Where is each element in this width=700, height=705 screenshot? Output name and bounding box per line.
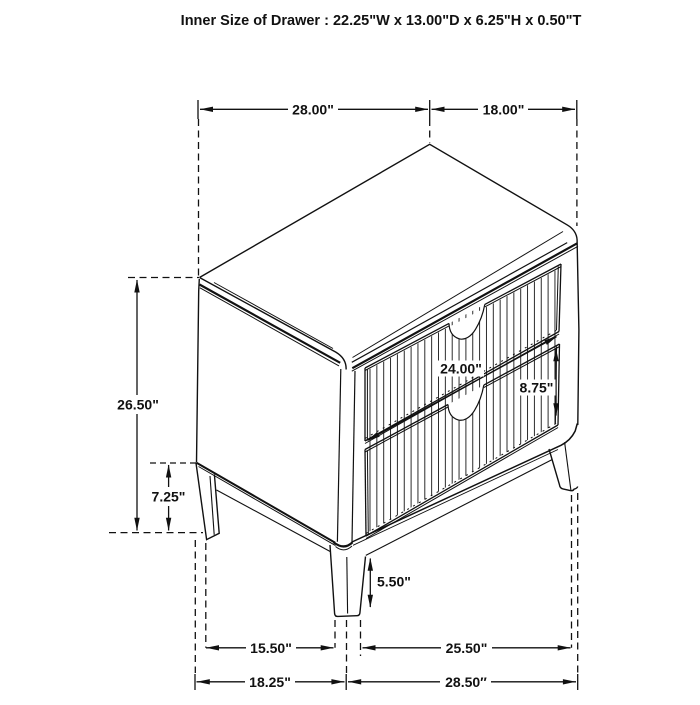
svg-text:Inner Size of Drawer : 22.25"W: Inner Size of Drawer : 22.25"W x 13.00"D… xyxy=(181,13,582,29)
svg-text:28.00": 28.00" xyxy=(292,101,334,117)
svg-text:26.50": 26.50" xyxy=(117,397,159,413)
svg-text:18.25": 18.25" xyxy=(249,674,291,690)
svg-text:18.00": 18.00" xyxy=(483,101,525,117)
svg-text:8.75": 8.75" xyxy=(520,380,554,396)
svg-text:28.50″: 28.50″ xyxy=(445,674,487,690)
svg-text:25.50": 25.50" xyxy=(446,640,488,656)
svg-text:24.00": 24.00" xyxy=(440,361,482,377)
svg-text:15.50": 15.50" xyxy=(250,640,292,656)
svg-text:7.25": 7.25" xyxy=(152,489,186,505)
svg-text:5.50": 5.50" xyxy=(377,574,411,590)
